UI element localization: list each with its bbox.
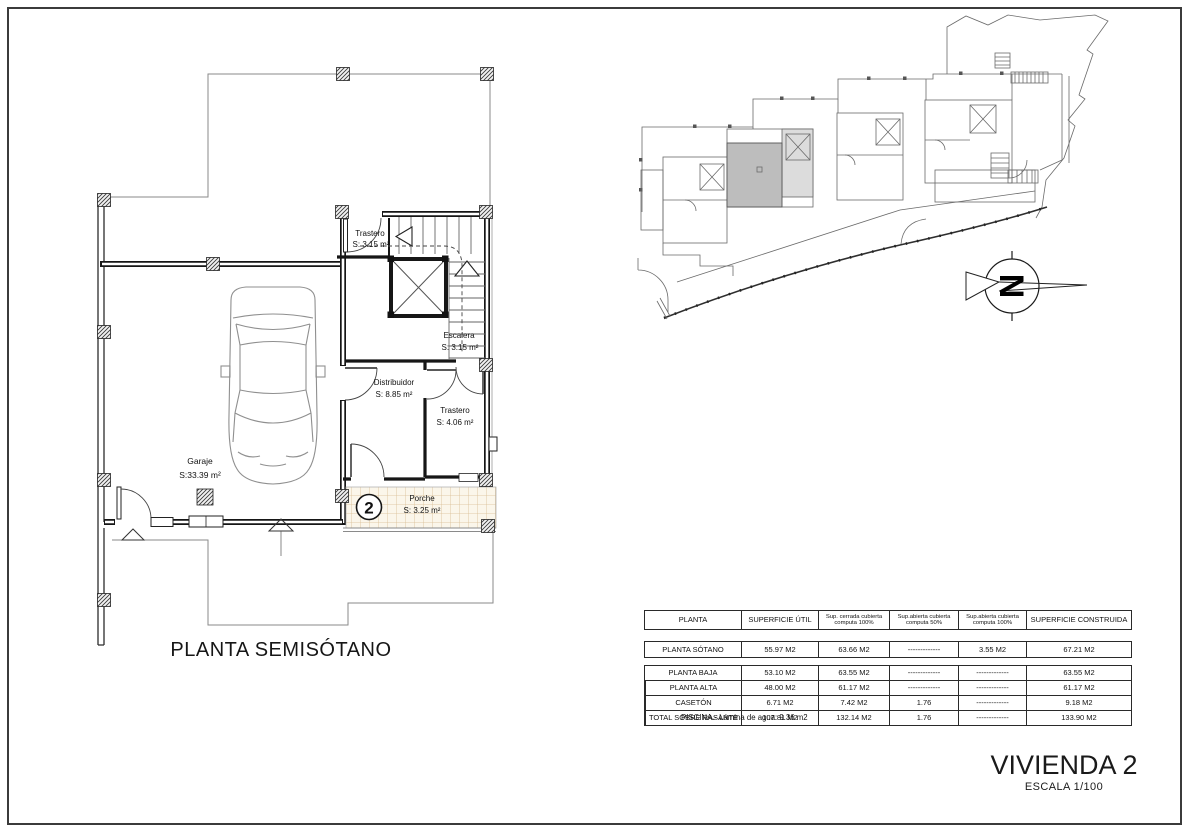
cell: PLANTA SÓTANO: [645, 642, 741, 657]
areas-table: PLANTA SUPERFICIE ÚTIL Sup. cerrada cubi…: [644, 609, 1189, 726]
room-label-trastero1-name: Trastero: [355, 229, 385, 238]
drawing-sheet: Trastero S: 3.15 m² Escalera S: 3.15 m² …: [0, 0, 1189, 832]
cell: 9.18 M2: [1026, 695, 1131, 710]
cell: 63.66 M2: [818, 642, 889, 657]
header-cell-abierta-100: Sup.abierta cubiertacomputa 100%: [958, 611, 1026, 629]
cell: 55.97 M2: [741, 642, 818, 657]
room-label-trastero2-area: S: 4.06 m²: [437, 418, 474, 427]
site-unit-3: [837, 113, 903, 200]
unit2-highlight: [727, 143, 782, 207]
site-unit-1: [663, 157, 727, 243]
north-letter: N: [992, 274, 1030, 299]
cell: 48.00 M2: [741, 680, 818, 695]
cell: 7.42 M2: [818, 695, 889, 710]
garage-entry-door-leaf: [117, 487, 121, 519]
garage-entry-door-arc: [121, 489, 151, 519]
floor-plan-title: PLANTA SEMISÓTANO: [146, 639, 416, 662]
north-arrow: N: [966, 251, 1087, 321]
cell: 63.55 M2: [818, 666, 889, 680]
garage-pillar: [197, 489, 213, 505]
cell: -------------: [958, 666, 1026, 680]
site-road-and-gardens: [638, 191, 1047, 319]
cell: -------------: [889, 680, 958, 695]
cell: 63.55 M2: [1026, 666, 1131, 680]
elevator-shaft: [388, 256, 449, 319]
cell: PLANTA BAJA: [645, 666, 741, 680]
floor-plan: Trastero S: 3.15 m² Escalera S: 3.15 m² …: [98, 68, 498, 646]
site-boundary: [642, 74, 1062, 212]
cell: 53.10 M2: [741, 666, 818, 680]
site-plan: N: [638, 15, 1108, 321]
cell: 61.17 M2: [818, 680, 889, 695]
room-label-garaje-name: Garaje: [187, 456, 213, 466]
project-title: VIVIENDA 2: [948, 750, 1180, 781]
room-label-porche-area: S: 3.25 m²: [404, 506, 441, 515]
room-label-escalera-name: Escalera: [443, 331, 475, 340]
header-cell-superficie-util: SUPERFICIE ÚTIL: [741, 611, 818, 629]
cell: -------------: [889, 666, 958, 680]
cell: 1.76: [889, 710, 958, 725]
room-label-distribuidor-area: S: 8.85 m²: [376, 390, 413, 399]
unit2-stair-core-area: [782, 129, 813, 197]
room-label-porche-name: Porche: [409, 494, 435, 503]
porche-front-edge: [343, 528, 496, 532]
unit-number: 2: [364, 499, 373, 518]
trastero1-door-leaf: [344, 219, 348, 252]
drawing-scale: ESCALA 1/100: [948, 781, 1180, 793]
entry-marker-triangle-left: [122, 529, 144, 540]
cell: -------------: [958, 710, 1026, 725]
header-cell-cerrada-100: Sup. cerrada cubiertacomputa 100%: [818, 611, 889, 629]
cell: CASETÓN: [645, 695, 741, 710]
stair-direction-arrow-left: [396, 227, 412, 246]
cell: 133.90 M2: [1026, 710, 1131, 725]
plot-boundary-top: [103, 74, 490, 213]
cell: 61.17 M2: [1026, 680, 1131, 695]
areas-table-sotano-row: PLANTA SÓTANO 55.97 M2 63.66 M2 --------…: [644, 641, 1132, 658]
cell: 3.55 M2: [958, 642, 1026, 657]
car-top-view: [221, 287, 325, 484]
cell: -------------: [958, 695, 1026, 710]
site-stair-hatches: [991, 53, 1048, 183]
header-cell-planta: PLANTA: [645, 611, 741, 629]
cell: -------------: [889, 642, 958, 657]
cell: 132.14 M2: [818, 710, 889, 725]
cell: 6.71 M2: [741, 695, 818, 710]
room-label-escalera-area: S: 3.15 m²: [442, 343, 479, 352]
boundary-ticks: [639, 72, 1004, 192]
site-terrace-platform: [935, 170, 1035, 202]
cell: PLANTA ALTA: [645, 680, 741, 695]
cell: 67.21 M2: [1026, 642, 1131, 657]
trastero2-door-arc: [427, 370, 456, 399]
trastero-window: [459, 474, 478, 482]
header-cell-superficie-construida: SUPERFICIE CONSTRUIDA: [1026, 611, 1131, 629]
site-unit-2-highlighted: [727, 129, 813, 207]
unit-number-badge: 2: [357, 495, 382, 520]
room-label-distribuidor-name: Distribuidor: [374, 378, 415, 387]
distribuidor-door-arc: [345, 368, 377, 400]
plot-boundary-bottom: [112, 530, 493, 625]
header-cell-abierta-50: Sup.abierta cubiertacomputa 50%: [889, 611, 958, 629]
trastero2-top-door-arc: [456, 367, 483, 394]
pool-note: PISCINA.- Lámina de agua: 9.36 m2: [681, 713, 808, 722]
site-unit-4: [925, 100, 1012, 183]
room-label-garaje-area: S:33.39 m²: [179, 470, 221, 480]
room-label-trastero1-area: S: 3.15 m²: [353, 240, 390, 249]
site-boundary-cliff: [947, 15, 1108, 218]
cell: 1.76: [889, 695, 958, 710]
cell: -------------: [958, 680, 1026, 695]
stair-direction-arrow-up: [455, 261, 479, 276]
site-houses: [641, 74, 1035, 243]
areas-table-header: PLANTA SUPERFICIE ÚTIL Sup. cerrada cubi…: [644, 610, 1132, 630]
room-label-trastero2-name: Trastero: [440, 406, 470, 415]
porche-door-arc: [351, 444, 384, 477]
